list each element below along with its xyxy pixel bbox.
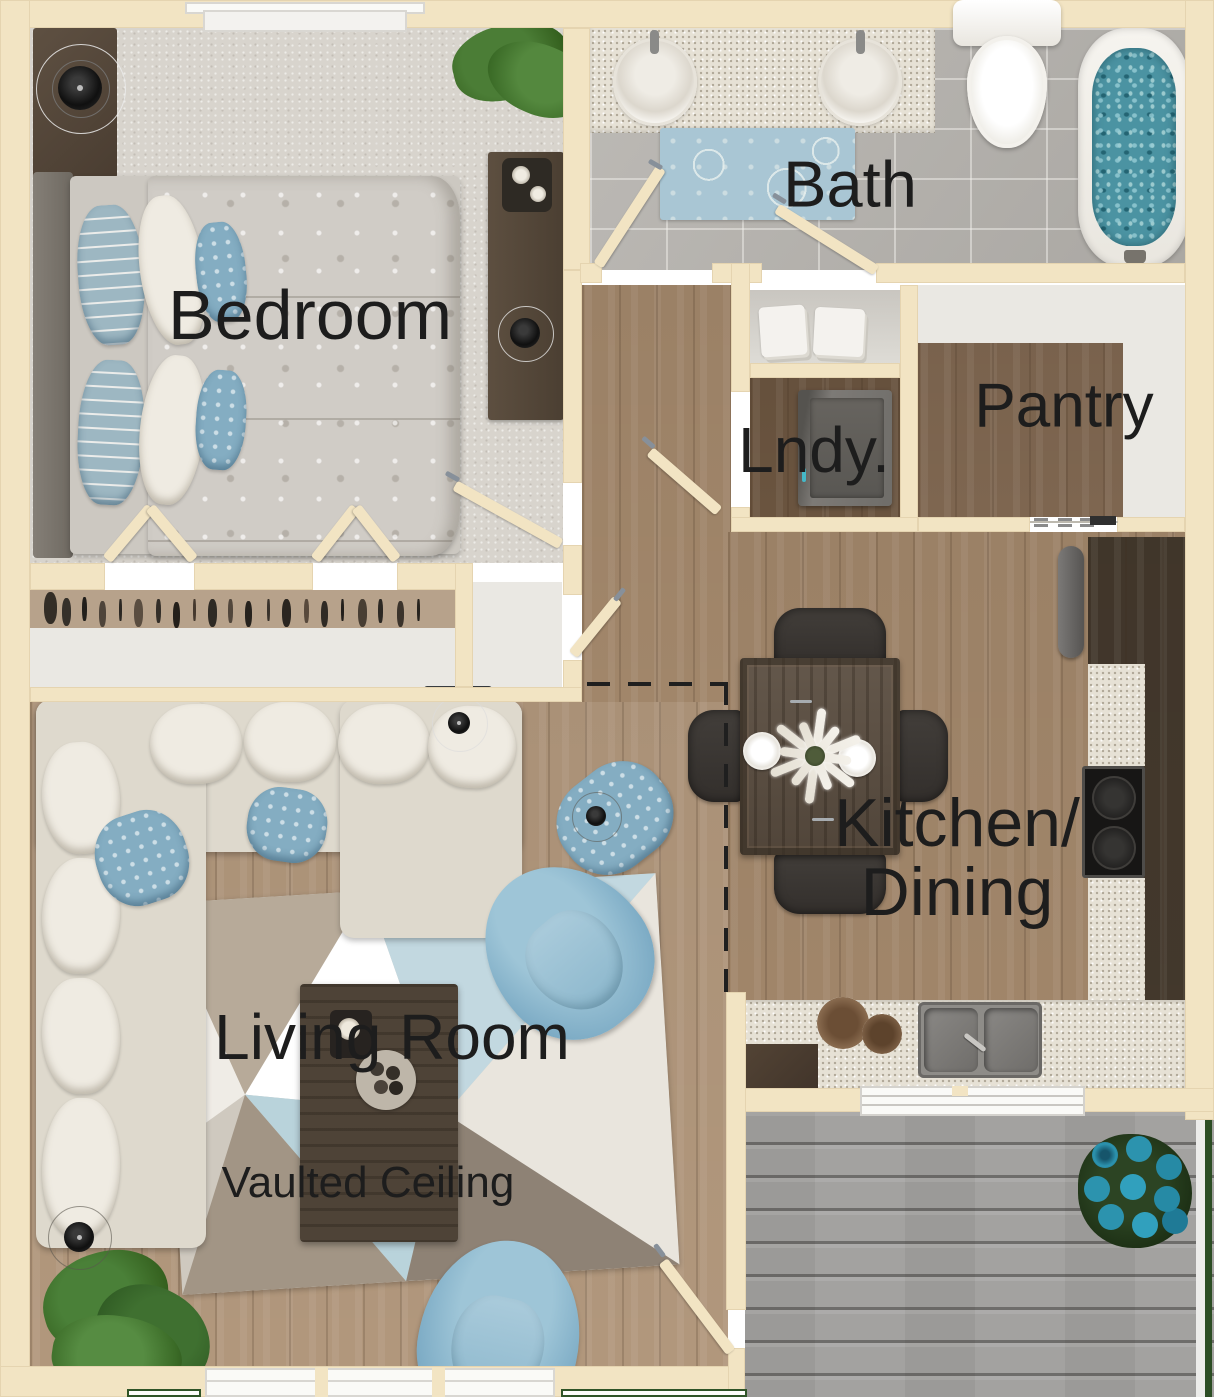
- wall: [728, 1088, 862, 1112]
- sink-basin: [984, 1008, 1038, 1072]
- towel-stack: [813, 307, 865, 358]
- decor-tray: [502, 158, 552, 212]
- room-label-kitchen-dining: Kitchen/ Dining: [834, 789, 1080, 927]
- kitchen-label-line2: Dining: [834, 858, 1080, 927]
- floor-plan: Bedroom Bath Lndy. Pantry Kitchen/ Dinin…: [0, 0, 1214, 1397]
- window-post: [432, 1368, 445, 1397]
- candle-icon: [512, 166, 530, 184]
- flower-blossom: [1092, 1142, 1118, 1168]
- cutlery-icon: [790, 700, 812, 703]
- bathtub-water: [1092, 48, 1176, 246]
- wall: [726, 992, 746, 1310]
- cooktop-burner: [1092, 826, 1136, 870]
- wall: [194, 563, 313, 590]
- window-post: [315, 1368, 328, 1397]
- hedge: [127, 1389, 201, 1397]
- note-vaulted-ceiling: Vaulted Ceiling: [222, 1158, 515, 1208]
- sliding-door-rail: [862, 1104, 1083, 1106]
- dining-chair: [688, 710, 744, 802]
- bowl-icon: [817, 997, 869, 1049]
- wall: [563, 28, 590, 270]
- closet-shoe-floor: [30, 590, 455, 630]
- speaker-disc: [510, 318, 540, 348]
- wall: [1083, 1088, 1214, 1112]
- wall: [563, 545, 582, 595]
- room-label-laundry: Lndy.: [738, 413, 890, 487]
- wall: [1117, 517, 1185, 532]
- bed-headboard: [33, 172, 73, 558]
- towel-stack: [758, 304, 807, 357]
- pocket-door-panel: [1090, 516, 1116, 525]
- wall: [876, 263, 1185, 283]
- cooktop-burner: [1092, 776, 1136, 820]
- kitchen-counter: [1088, 664, 1145, 766]
- centerpiece-vase: [805, 746, 825, 766]
- wall: [1185, 0, 1214, 1120]
- wall: [30, 563, 105, 590]
- refrigerator-handle: [1058, 546, 1084, 658]
- window: [205, 1368, 555, 1397]
- wall: [750, 363, 900, 378]
- wall: [30, 687, 582, 702]
- bowl-icon: [862, 1014, 902, 1054]
- wall: [900, 285, 918, 532]
- room-label-bath: Bath: [783, 147, 917, 222]
- counter-wood-insert: [742, 1044, 818, 1092]
- ceiling-light-dot: [457, 721, 461, 725]
- deck-edge-green: [1205, 1118, 1212, 1397]
- wall: [731, 263, 750, 392]
- ceiling-light-dot: [77, 1235, 82, 1240]
- sliding-door-rail: [862, 1095, 1083, 1097]
- shoe-row: [44, 592, 57, 624]
- pocket-door-mark: [1034, 518, 1048, 521]
- wall: [563, 270, 582, 483]
- wall: [918, 517, 1030, 532]
- ceiling-break-line: [724, 682, 728, 994]
- window: [203, 10, 407, 32]
- sofa-back-cushion: [243, 700, 338, 783]
- faucet-icon: [650, 30, 659, 54]
- faucet-icon: [856, 30, 865, 54]
- small-closet-floor: [473, 582, 562, 687]
- wall: [0, 0, 30, 1397]
- window-line: [205, 1380, 555, 1382]
- wall: [731, 517, 918, 532]
- ceiling-light-disc: [586, 806, 606, 826]
- room-label-bedroom: Bedroom: [168, 275, 452, 355]
- hedge: [561, 1389, 747, 1397]
- candle-icon: [530, 186, 546, 202]
- room-label-living-room: Living Room: [214, 1000, 570, 1074]
- closet-floor: [30, 628, 455, 687]
- sliding-door-pull: [952, 1086, 968, 1096]
- room-label-pantry: Pantry: [974, 371, 1153, 442]
- ceiling-break-line: [587, 682, 728, 686]
- cutlery-icon: [812, 818, 834, 821]
- ceiling-light-dot: [77, 85, 83, 91]
- kitchen-label-line1: Kitchen/: [834, 789, 1080, 858]
- sliding-door: [860, 1086, 1085, 1116]
- wall: [455, 563, 473, 687]
- tub-faucet-icon: [1124, 250, 1146, 264]
- deck-edge-white: [1196, 1118, 1205, 1397]
- hallway-floor: [582, 285, 731, 702]
